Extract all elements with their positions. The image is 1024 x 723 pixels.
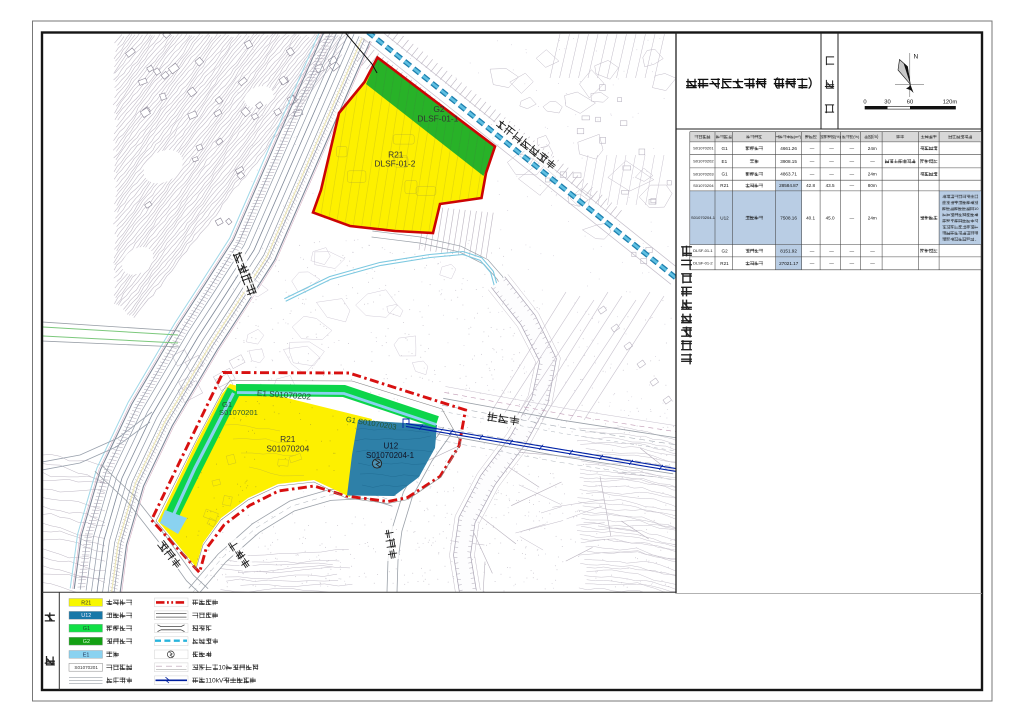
svg-text:—: — xyxy=(850,159,855,164)
svg-text:G2: G2 xyxy=(722,248,729,253)
svg-text:24m: 24m xyxy=(868,172,877,177)
svg-text:S01070204: S01070204 xyxy=(693,183,714,188)
svg-text:—: — xyxy=(810,248,815,253)
svg-text:4863.71: 4863.71 xyxy=(780,172,797,177)
svg-text:DLSF-01-1: DLSF-01-1 xyxy=(693,248,713,253)
svg-text:0: 0 xyxy=(863,100,866,106)
svg-text:G1: G1 xyxy=(722,172,729,177)
svg-text:G1: G1 xyxy=(83,626,90,632)
svg-text:G2: G2 xyxy=(83,639,90,645)
svg-text:—: — xyxy=(810,261,815,266)
svg-text:G2: G2 xyxy=(433,104,445,114)
svg-text:—: — xyxy=(870,248,875,253)
svg-text:40.1: 40.1 xyxy=(806,215,815,220)
svg-text:S01070203: S01070203 xyxy=(693,171,714,176)
svg-text:N: N xyxy=(914,53,919,60)
svg-text:—: — xyxy=(850,146,855,151)
svg-text:—: — xyxy=(870,261,875,266)
svg-text:10: 10 xyxy=(974,206,979,211)
svg-text:R21: R21 xyxy=(81,600,91,606)
svg-text:—: — xyxy=(850,215,855,220)
svg-text:—: — xyxy=(829,172,834,177)
svg-text:(m²): (m²) xyxy=(794,134,802,139)
svg-text:—: — xyxy=(829,159,834,164)
svg-text:60: 60 xyxy=(907,100,913,106)
svg-text:(%): (%) xyxy=(835,134,842,139)
svg-text:30: 30 xyxy=(884,100,890,106)
svg-text:80m: 80m xyxy=(868,183,877,188)
svg-text:28584.87: 28584.87 xyxy=(779,183,799,188)
svg-text:DLSF-01-2: DLSF-01-2 xyxy=(374,159,415,169)
svg-text:—: — xyxy=(829,146,834,151)
svg-text:R21: R21 xyxy=(720,183,729,188)
svg-text:S01070201: S01070201 xyxy=(74,665,98,670)
svg-text:—: — xyxy=(850,183,855,188)
svg-text:S01070201: S01070201 xyxy=(219,408,258,417)
svg-text:—: — xyxy=(850,248,855,253)
svg-text:—: — xyxy=(850,172,855,177)
svg-text:24m: 24m xyxy=(868,146,877,151)
svg-text:10: 10 xyxy=(218,665,226,672)
svg-text:—: — xyxy=(870,159,875,164)
svg-text:(%): (%) xyxy=(853,134,860,139)
svg-text:45.0: 45.0 xyxy=(826,215,835,220)
svg-text:3908.15: 3908.15 xyxy=(780,159,797,164)
svg-text:—: — xyxy=(829,248,834,253)
svg-text:—: — xyxy=(810,159,815,164)
svg-text:）: ） xyxy=(808,77,820,91)
svg-text:120m: 120m xyxy=(943,100,958,106)
svg-text:E1: E1 xyxy=(83,652,90,658)
svg-text:43.5: 43.5 xyxy=(826,183,835,188)
svg-text:8151.92: 8151.92 xyxy=(780,248,797,253)
svg-text:DLSF-01-1: DLSF-01-1 xyxy=(417,114,458,124)
svg-text:—: — xyxy=(829,261,834,266)
svg-text:U12: U12 xyxy=(384,441,399,450)
svg-text:S01070204: S01070204 xyxy=(266,444,309,454)
svg-text:7508.16: 7508.16 xyxy=(780,215,797,220)
svg-text:R21: R21 xyxy=(720,261,729,266)
svg-text:—: — xyxy=(810,146,815,151)
svg-text:R21: R21 xyxy=(280,434,296,444)
svg-text:G1: G1 xyxy=(722,146,729,151)
svg-text:4661.26: 4661.26 xyxy=(780,146,797,151)
svg-text:—: — xyxy=(850,261,855,266)
svg-text:S01070204-1: S01070204-1 xyxy=(691,215,716,220)
svg-text:U12: U12 xyxy=(720,215,729,220)
svg-text:(m): (m) xyxy=(872,134,879,139)
svg-text:27021.17: 27021.17 xyxy=(779,261,799,266)
svg-text:42.8: 42.8 xyxy=(806,183,815,188)
svg-text:S01070202: S01070202 xyxy=(693,159,714,164)
svg-text:—: — xyxy=(810,172,815,177)
svg-text:DLSF-01-2: DLSF-01-2 xyxy=(693,261,713,266)
svg-text:（: （ xyxy=(767,77,779,91)
svg-text:S01070201: S01070201 xyxy=(693,146,714,151)
svg-text:S01070204-1: S01070204-1 xyxy=(366,451,415,460)
svg-text:E1: E1 xyxy=(722,159,728,164)
svg-text:24m: 24m xyxy=(868,215,877,220)
svg-text:U12: U12 xyxy=(81,613,91,619)
svg-text:110kV: 110kV xyxy=(205,678,224,685)
